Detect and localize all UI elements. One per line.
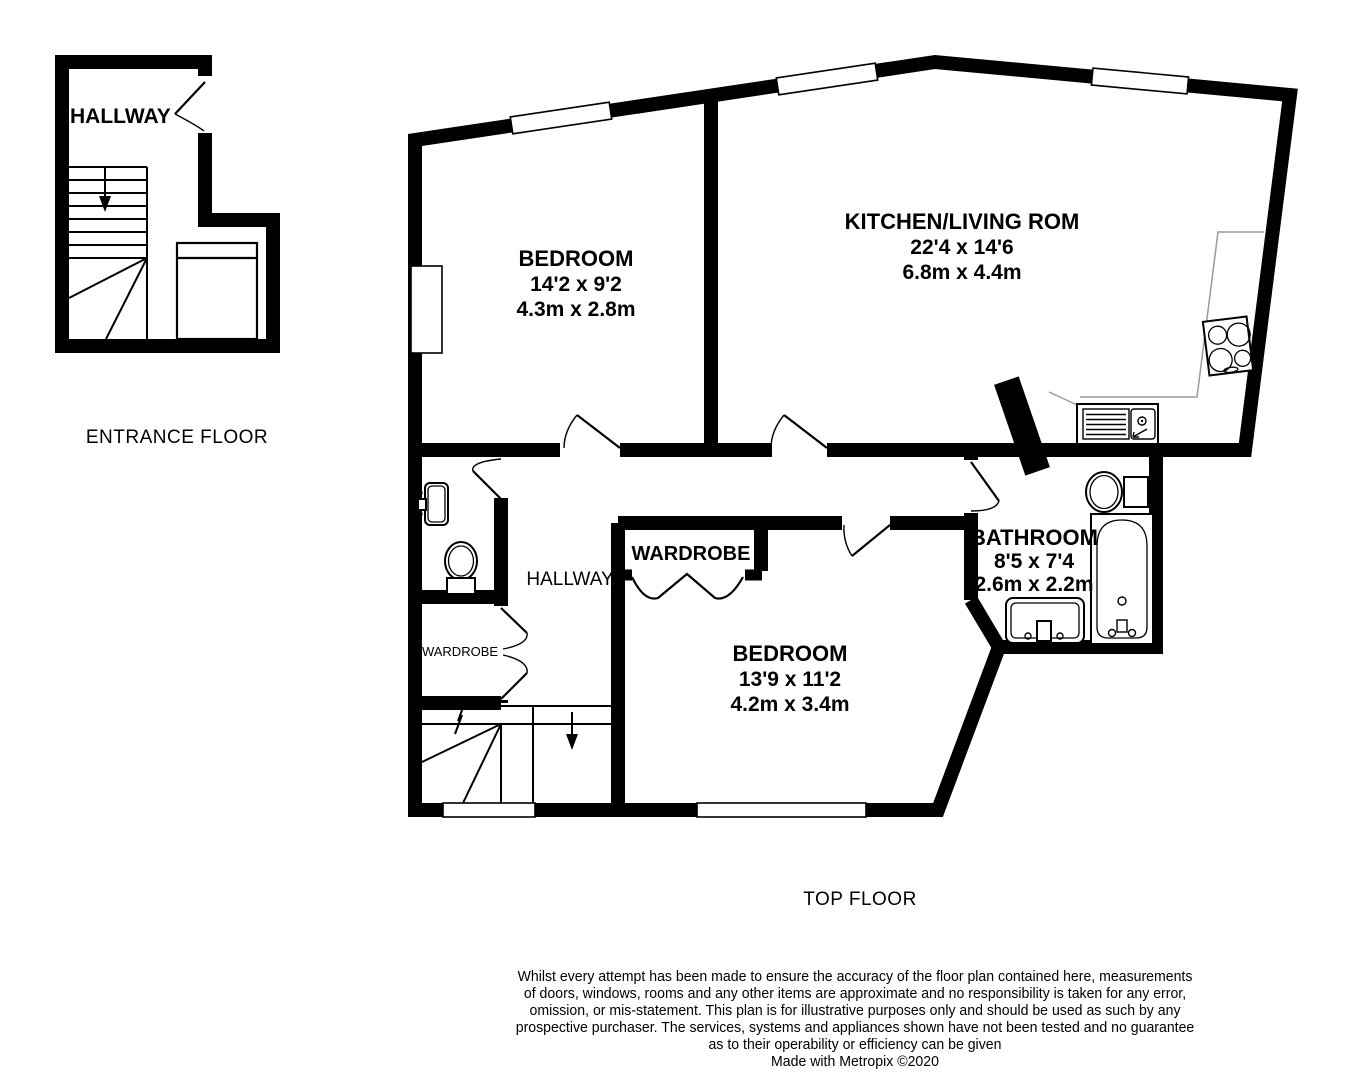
top-floor-stairs xyxy=(422,702,611,803)
bedroom1-door xyxy=(564,415,620,448)
wardrobe-bifold-doors xyxy=(632,574,743,599)
disclaimer-line: as to their operability or efficiency ca… xyxy=(484,1036,1227,1053)
hallway-label: HALLWAY xyxy=(526,569,614,590)
window-west xyxy=(411,266,442,353)
window-bottom-1 xyxy=(443,803,535,817)
bathroom-door xyxy=(971,462,999,511)
floorplan-page: HALLWAY ENTRANCE FLOOR xyxy=(0,0,1369,1080)
wardrobe-label: WARDROBE xyxy=(632,543,751,565)
floorplan-drawing: HALLWAY ENTRANCE FLOOR xyxy=(0,0,1369,1080)
small-wardrobe-label: WARDROBE xyxy=(422,644,498,659)
bedroom2-imperial-label: 13'9 x 11'2 xyxy=(739,668,841,691)
bedroom2-metric-label: 4.2m x 3.4m xyxy=(730,693,849,716)
wc-door xyxy=(473,459,501,499)
top-floor-title: TOP FLOOR xyxy=(803,889,917,910)
kitchen-name-label: KITCHEN/LIVING ROM xyxy=(845,209,1080,234)
disclaimer-line: omission, or mis-statement. This plan is… xyxy=(484,1002,1227,1019)
bathroom-vanity-icon xyxy=(1006,598,1084,643)
kitchen-door xyxy=(771,415,827,448)
bathtub-icon xyxy=(1091,514,1153,644)
entrance-floor-title: ENTRANCE FLOOR xyxy=(86,427,268,448)
wc-toilet-icon xyxy=(445,542,477,594)
hob-icon xyxy=(1203,316,1255,375)
kitchen-metric-label: 6.8m x 4.4m xyxy=(902,261,1021,284)
disclaimer-text: Whilst every attempt has been made to en… xyxy=(484,968,1227,1070)
bathroom-name-label: BATHROOM xyxy=(970,525,1098,550)
disclaimer-made-with: Made with Metropix ©2020 xyxy=(484,1053,1227,1070)
small-wardrobe-doors xyxy=(501,608,527,699)
bathroom-toilet-icon xyxy=(1086,472,1148,512)
window-top-1 xyxy=(510,102,611,134)
top-floor-plan: BEDROOM 14'2 x 9'2 4.3m x 2.8m KITCHEN/L… xyxy=(411,62,1290,910)
entrance-cupboard xyxy=(177,243,257,339)
bedroom2-name-label: BEDROOM xyxy=(733,641,848,666)
bedroom1-name-label: BEDROOM xyxy=(519,246,634,271)
window-top-2 xyxy=(776,63,877,95)
bedroom1-metric-label: 4.3m x 2.8m xyxy=(516,298,635,321)
bathroom-metric-label: 2.6m x 2.2m xyxy=(974,573,1093,596)
entrance-stairs xyxy=(69,167,147,339)
stairs-down-arrow-icon xyxy=(566,712,578,750)
window-top-3 xyxy=(1091,68,1188,94)
window-bottom-2 xyxy=(697,803,866,817)
bathroom-imperial-label: 8'5 x 7'4 xyxy=(994,550,1074,573)
wc-basin-icon xyxy=(418,483,448,525)
entrance-door xyxy=(175,82,205,131)
bedroom2-door xyxy=(844,525,890,556)
entrance-hallway-label: HALLWAY xyxy=(70,105,171,128)
kitchen-angled-wall-stub xyxy=(994,376,1050,475)
disclaimer-line: of doors, windows, rooms and any other i… xyxy=(484,985,1227,1002)
entrance-floor-plan: HALLWAY ENTRANCE FLOOR xyxy=(62,62,273,448)
kitchen-sink-icon xyxy=(1077,404,1158,444)
bedroom1-imperial-label: 14'2 x 9'2 xyxy=(530,273,622,296)
disclaimer-line: Whilst every attempt has been made to en… xyxy=(484,968,1227,985)
kitchen-imperial-label: 22'4 x 14'6 xyxy=(910,236,1013,259)
disclaimer-line: prospective purchaser. The services, sys… xyxy=(484,1019,1227,1036)
